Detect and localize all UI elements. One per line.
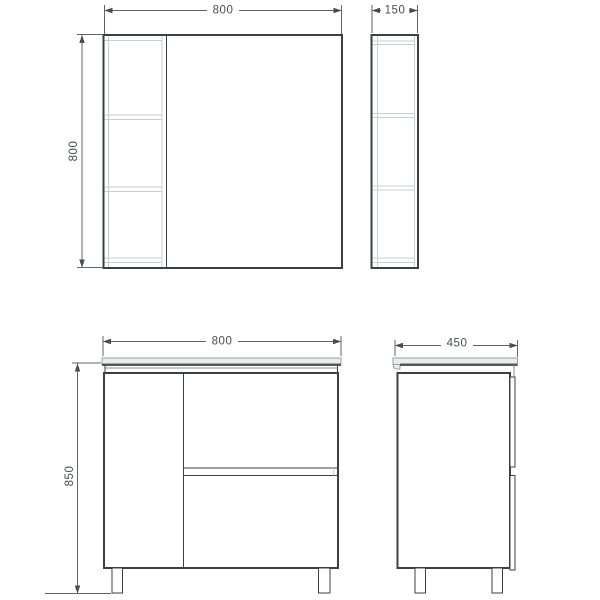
arrowhead-right: [334, 8, 342, 14]
arrowhead-down: [79, 260, 85, 268]
side-shelf-lines: [373, 41, 415, 263]
mirror-front-height-dimension: 800: [68, 35, 103, 268]
vanity-width-dimension: 800: [103, 334, 341, 356]
mirror-cabinet-front-view: 800 800: [68, 3, 342, 268]
mirror-cabinet-side-view: 150: [372, 3, 419, 268]
arrowhead-right: [410, 8, 418, 14]
arrowhead-left: [103, 339, 111, 345]
arrowhead-left: [372, 8, 380, 14]
upper-drawer-front-edge: [510, 377, 515, 467]
vanity-carcass-outline: [104, 373, 338, 568]
arrowhead-right: [333, 339, 341, 345]
mirror-height-label: 800: [68, 141, 80, 162]
arrowhead-down: [75, 586, 81, 594]
open-shelf-lines: [105, 41, 163, 263]
vanity-height-label: 850: [64, 466, 76, 487]
lower-drawer-front-edge: [510, 476, 515, 571]
drawing-page: 800 800: [0, 0, 600, 600]
mirror-side-outline: [372, 35, 419, 268]
vanity-width-label: 800: [212, 336, 233, 348]
vanity-side-view: 450: [393, 336, 518, 593]
vanity-leg-right: [319, 568, 331, 593]
arrowhead-left: [395, 343, 403, 349]
mirror-front-width-dimension: 800: [105, 3, 342, 34]
mirror-side-depth-dimension: 150: [372, 3, 418, 33]
mirror-width-label: 800: [213, 5, 234, 17]
countertop-front-lip: [394, 365, 401, 369]
vanity-height-dimension: 850: [45, 363, 111, 593]
arrowhead-up: [75, 364, 81, 372]
vanity-depth-dimension: 450: [395, 336, 518, 357]
side-leg-back: [492, 568, 503, 593]
vanity-leg-left: [112, 568, 123, 593]
technical-drawing-canvas: 800 800: [0, 0, 600, 600]
countertop: [102, 358, 341, 365]
side-leg-front: [415, 568, 426, 593]
mirror-depth-label: 150: [385, 5, 406, 17]
mirror-cabinet-outline: [104, 35, 343, 268]
vanity-depth-label: 450: [447, 338, 468, 350]
countertop-side: [393, 358, 518, 365]
arrowhead-right: [510, 343, 518, 349]
arrowhead-left: [105, 8, 113, 14]
arrowhead-up: [79, 35, 85, 43]
vanity-side-carcass: [398, 373, 511, 568]
vanity-front-view: 800 850: [45, 334, 341, 594]
